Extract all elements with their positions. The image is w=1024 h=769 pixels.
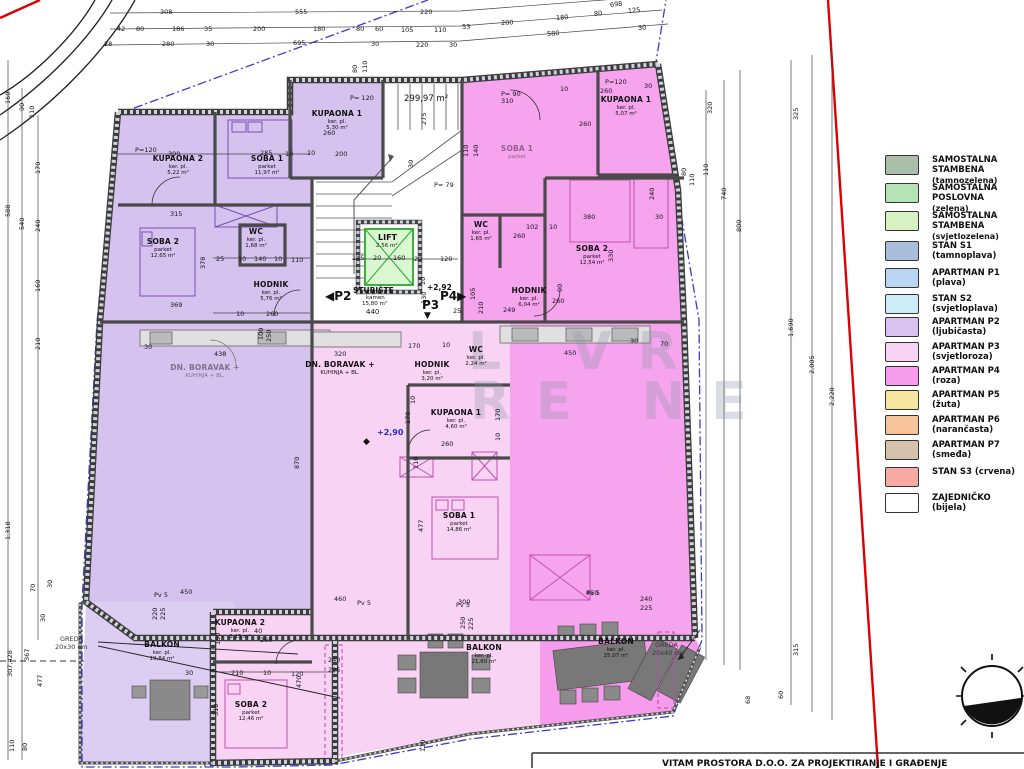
level-main: +2,90 (377, 428, 403, 437)
site-plan-drawing: L VR RE NE LIFT 2.56 m² STUBIŠTE kamen 1… (0, 0, 1024, 768)
dimension-label: 110 (702, 164, 710, 176)
dimension-label: 260 (260, 636, 272, 644)
dimension-label: 70 (29, 584, 37, 592)
room-label: KUPAONA 1ker. pl.4,60 m² (431, 409, 481, 430)
room-name: BALKON (466, 644, 502, 653)
dimension-label: 315 (170, 210, 182, 218)
dimension-label: 580 (547, 29, 560, 38)
dimension-label: 330 (607, 250, 615, 262)
dimension-label: 180 (313, 25, 325, 33)
legend-swatch (885, 294, 919, 314)
dimension-label: 10 (236, 310, 244, 318)
dimension-label: Pv 5 (456, 601, 470, 609)
legend-swatch (885, 366, 919, 386)
dimension-label: 240 (640, 595, 652, 603)
room-name: WC (245, 228, 267, 237)
dimension-label: 30 (46, 580, 54, 588)
dimension-label: 28 (104, 40, 112, 48)
dimension-label: 80 (136, 25, 144, 33)
dimension-label: 320 (334, 350, 346, 358)
room-label: SOBA 2parket12,54 m² (576, 245, 608, 266)
dimension-label: 110 (419, 740, 427, 752)
dimension-label: 240 (328, 656, 340, 664)
dimension-label: 110 (361, 61, 369, 73)
dimension-label: 2,220 (828, 387, 836, 406)
dimension-label: 110 (8, 740, 16, 752)
dimension-label: 1,690 (787, 318, 795, 337)
dimension-label: 477 (36, 675, 44, 687)
room-label: SOBA 1parket (501, 145, 533, 160)
north-symbol (956, 654, 1024, 738)
dimension-label: 145 (352, 254, 364, 262)
dimension-label: 369 (170, 301, 182, 309)
room-name: DN. BORAVAK + (305, 361, 375, 370)
dimension-label: 477 (417, 520, 425, 532)
room-floor-finish: ker. pl. (470, 230, 492, 236)
room-area: 5,22 m² (153, 170, 203, 176)
dimension-label: Pv 5 (586, 589, 600, 597)
dimension-label: P= 120 (350, 94, 374, 102)
legend-label: APARTMAN P4 (roza) (932, 367, 1024, 387)
stair-dim: 440 (366, 308, 379, 316)
dimension-label: 225 (467, 618, 475, 630)
dimension-label: 470 (295, 676, 303, 688)
dimension-label: 275 (420, 113, 428, 125)
dimension-label: 225 (328, 666, 340, 674)
dimension-label: 80 (351, 65, 359, 73)
legend-label: STAN S1 (tamnoplava) (932, 242, 1024, 262)
legend-swatch (885, 440, 919, 460)
room-floor-finish: ker. pl. (245, 237, 267, 243)
room-label: WCker. pl.1,68 m² (245, 228, 267, 249)
dimension-label: 285 (260, 149, 272, 157)
dimension-label: 25 (453, 307, 461, 315)
dimension-label: 100 (257, 328, 265, 340)
room-area: 1,65 m² (470, 236, 492, 242)
room-area: 5,07 m² (601, 111, 651, 117)
room-label: BALKONker. pl.21,60 m² (466, 644, 502, 665)
dimension-label: 250 (459, 617, 467, 629)
legend-label: APARTMAN P1 (plava) (932, 269, 1024, 289)
dimension-label: 30 (638, 23, 647, 32)
room-area: 3,20 m² (415, 376, 450, 382)
dimension-label: 110 (291, 256, 303, 264)
dimension-label: 42 (117, 25, 125, 33)
legend-swatch (885, 317, 919, 337)
room-name: SOBA 2 (147, 238, 179, 247)
dimension-label: 80 (21, 743, 29, 751)
dimension-label: 240 (34, 220, 42, 232)
room-area: 25,07 m² (598, 653, 634, 659)
legend-swatch (885, 268, 919, 288)
room-label: DN. BORAVAK +KUHINJA + BL. (170, 364, 240, 379)
dimension-label: 210 (231, 669, 243, 677)
legend-swatch (885, 211, 919, 231)
legend-swatch (885, 183, 919, 203)
dimension-label: Pv 5 (154, 591, 168, 599)
dimension-label: 25 (216, 255, 224, 263)
room-name: BALKON (144, 641, 180, 650)
dimension-label: 225 (159, 608, 167, 620)
dimension-label: 53 (462, 23, 471, 31)
legend-label: APARTMAN P7 (smeđa) (932, 441, 1024, 461)
dimension-label: 698 (610, 0, 623, 9)
room-label: HODNIKker. pl.5,76 m² (254, 281, 289, 302)
dimension-label: 170 (34, 162, 42, 174)
room-area: 6,04 m² (512, 302, 547, 308)
greda-left-size: 20x30 cm (55, 643, 87, 651)
dimension-label: 110 (28, 106, 36, 118)
dimension-label: 260 (579, 120, 591, 128)
room-name: BALKON (598, 638, 634, 647)
dimension-label: 310 (501, 97, 513, 105)
level-upper: +2,92 (427, 283, 452, 292)
dimension-label: 186 (172, 25, 184, 33)
dimension-label: 200 (501, 18, 514, 27)
dimension-label: 260 (600, 87, 612, 95)
dimension-label: 30 (655, 213, 663, 221)
dimension-label: 870 (293, 457, 301, 469)
dimension-label: 220 (416, 41, 428, 49)
dimension-label: 2,005 (808, 355, 816, 374)
room-area: 2,24 m² (465, 361, 487, 367)
dimension-label: 450 (180, 588, 192, 596)
dimension-label: 30 (644, 82, 652, 90)
dimension-label: 249 (503, 306, 515, 314)
dimension-label: 308 (160, 8, 172, 16)
apartment-p2-marker: ◀P2 (325, 289, 351, 303)
dimension-label: 30 (144, 343, 152, 351)
dimension-label: 60 (375, 25, 383, 33)
dimension-label: 10 (285, 150, 293, 158)
room-area: 12,54 m² (576, 260, 608, 266)
dimension-label: Pv 5 (357, 599, 371, 607)
room-label: KUPAONA 2ker. pl.5,22 m² (153, 155, 203, 176)
room-name: DN. BORAVAK + (170, 364, 240, 373)
dimension-label: 40 (254, 627, 262, 635)
dimension-label: 110 (462, 145, 470, 157)
room-area: 5,76 m² (254, 296, 289, 302)
dimension-label: 140 (472, 145, 480, 157)
room-label: SOBA 1parket11,97 m² (251, 155, 283, 176)
dimension-label: 220 (420, 8, 432, 16)
dimension-label: 68 (744, 696, 752, 704)
dimension-label: 460 (334, 595, 346, 603)
dimension-label: 10 (307, 149, 315, 157)
legend-swatch (885, 467, 919, 487)
dimension-label: 200 (253, 25, 265, 33)
room-area: 21,60 m² (466, 659, 502, 665)
dimension-label: 210 (34, 338, 42, 350)
room-label: WCker. pl.2,24 m² (465, 346, 487, 367)
dimension-label: 20 (414, 255, 422, 263)
room-label: SOBA 2parket12,46 m² (235, 701, 267, 722)
room-name: SOBA 1 (501, 145, 533, 154)
dimension-label: 160 (4, 92, 12, 104)
dimension-label: 110 (412, 457, 420, 469)
room-name: HODNIK (254, 281, 289, 290)
greda-right-label: GREDA (655, 641, 678, 649)
dimension-label: 20 (373, 254, 381, 262)
legend-label: STAN S2 (svjetloplava) (932, 295, 1024, 315)
legend-label: APARTMAN P6 (narančasta) (932, 416, 1024, 436)
dimension-label: 540 (18, 218, 26, 230)
dimension-label: 35 (204, 25, 212, 33)
dimension-label: 105 (469, 288, 477, 300)
greda-right-size: 20x40 cm (652, 649, 684, 657)
dimension-label: 120 (440, 255, 452, 263)
dimension-label: 10 (409, 396, 417, 404)
dimension-label: 588 (4, 205, 12, 217)
dimension-label: 170 (494, 409, 502, 421)
dimension-label: 10 (560, 85, 568, 93)
legend-label: SAMOSTALNA STAMBENA(tamnozelena) (932, 156, 1024, 185)
room-label: SOBA 2parket12,65 m² (147, 238, 179, 259)
legend-swatch (885, 390, 919, 410)
room-label: KUPAONA 1ker. pl.5,30 m² (312, 110, 362, 131)
dimension-label: 695 (293, 39, 305, 47)
stair-area: 15,80 m² (362, 301, 387, 307)
dimension-label: 740 (720, 188, 728, 200)
dimension-label: 390 (168, 150, 180, 158)
red-boundary-top-left (0, 0, 40, 18)
legend-sublabel: (svjetlozelena) (932, 232, 1024, 241)
dimension-label: 130 (420, 292, 428, 304)
dimension-label: 30 (185, 669, 193, 677)
room-name: KUPAONA 1 (312, 110, 362, 119)
legend-swatch (885, 241, 919, 261)
room-area: 12,46 m² (235, 716, 267, 722)
dimension-label: 240 (648, 188, 656, 200)
dimension-label: 70 (660, 340, 668, 348)
apartment-p3-arrow: ▼ (424, 311, 431, 321)
dimension-label: 80 (594, 9, 603, 18)
dimension-label: 110 (434, 26, 446, 34)
dimension-label: 307,428 (6, 650, 14, 677)
watermark-line2: RE NE (470, 372, 773, 432)
dimension-label: 800 (735, 220, 743, 232)
dimension-label: 110 (688, 174, 696, 186)
dimension-label: 30 (39, 614, 47, 622)
dimension-label: 90 (556, 284, 564, 292)
legend-label: ZAJEDNIČKO (bijela) (932, 494, 1024, 514)
dimension-label: 10 (263, 669, 271, 677)
legend-label: APARTMAN P3 (svjetloroza) (932, 343, 1024, 363)
dimension-label: 450 (564, 349, 576, 357)
dimension-label: 320 (706, 102, 714, 114)
dimension-label: 160 (393, 254, 405, 262)
room-name: HODNIK (512, 287, 547, 296)
dimension-label: 125 (628, 6, 641, 15)
dimension-label: P=120 (135, 146, 157, 154)
legend-label: APARTMAN P2 (ljubičasta) (932, 318, 1024, 338)
room-area: 11,97 m² (251, 170, 283, 176)
dimension-label: 30 (407, 160, 415, 168)
room-name: WC (465, 346, 487, 355)
dimension-label: 90 (18, 103, 26, 111)
room-name: KUPAONA 1 (431, 409, 481, 418)
dimension-label: 30 (206, 40, 214, 48)
dimension-label: 150 (214, 633, 222, 645)
dimension-label: 1,318 (4, 521, 12, 540)
dimension-label: 30 (371, 40, 379, 48)
dimension-label: 260 (441, 440, 453, 448)
room-label: BALKONker. pl.25,07 m² (598, 638, 634, 659)
room-area: 4,60 m² (431, 424, 481, 430)
dimension-label: 170 (408, 342, 420, 350)
dimension-label: 140 (254, 255, 266, 263)
legend-label: APARTMAN P5 (žuta) (932, 391, 1024, 411)
dimension-label: 200 (335, 150, 347, 158)
dimension-label: 10 (238, 255, 246, 263)
dimension-label: 10 (442, 341, 450, 349)
legend-label: SAMOSTALNA POSLOVNA(zelena) (932, 184, 1024, 213)
room-floor-finish: KUHINJA + BL. (305, 370, 375, 376)
dimension-label: 160 (34, 280, 42, 292)
room-label: HODNIKker. pl.3,20 m² (415, 361, 450, 382)
room-area: 1,68 m² (245, 243, 267, 249)
dimension-label: 438 (214, 350, 226, 358)
dimension-label: 210 (477, 302, 485, 314)
greda-left-label: GREDA (60, 635, 83, 643)
room-label: DN. BORAVAK +KUHINJA + BL. (305, 361, 375, 376)
dimension-label: 180 (556, 13, 569, 22)
dimension-label: 30 (449, 41, 457, 49)
total-area-label: 299,97 m² (404, 94, 448, 104)
room-area: 12,65 m² (147, 253, 179, 259)
legend-swatch (885, 415, 919, 435)
room-floor-finish: KUHINJA + BL. (170, 373, 240, 379)
room-area: 14,86 m² (443, 527, 475, 533)
room-floor-finish: parket (501, 154, 533, 160)
legend-label: SAMOSTALNA STAMBENA(svjetlozelena) (932, 212, 1024, 241)
room-name: SOBA 2 (235, 701, 267, 710)
room-floor-finish: ker. pl. (465, 355, 487, 361)
dimension-label: 170 (404, 412, 412, 424)
dimension-label: 105 (401, 26, 413, 34)
room-label: SOBA 1parket14,86 m² (443, 512, 475, 533)
dimension-label: 10 (549, 223, 557, 231)
room-name: SOBA 1 (443, 512, 475, 521)
dimension-label: 80 (356, 25, 364, 33)
room-label: WCker. pl.1,65 m² (470, 221, 492, 242)
dimension-label: 310 (212, 704, 220, 716)
red-boundary-line (828, 0, 878, 768)
dimension-label: 220 (151, 608, 159, 620)
dimension-label: 30 (630, 337, 638, 345)
dimension-label: 80 (680, 168, 688, 176)
room-area: 5,30 m² (312, 125, 362, 131)
dimension-label: 10 (494, 433, 502, 441)
dimension-label: 260 (266, 310, 278, 318)
dimension-label: 380 (583, 213, 595, 221)
dimension-label: 280 (162, 40, 174, 48)
dimension-label: 378 (199, 257, 207, 269)
level-symbol: ◆ (363, 437, 370, 447)
dimension-label: P=120 (605, 78, 627, 86)
lift-area: 2.56 m² (376, 243, 398, 249)
dimension-label: 367 (23, 649, 31, 661)
room-label: KUPAONA 1ker. pl.5,07 m² (601, 96, 651, 117)
dimension-label: 225 (640, 604, 652, 612)
legend-swatch (885, 493, 919, 513)
room-name: KUPAONA 1 (601, 96, 651, 105)
dimension-label: 20 (419, 277, 427, 285)
dimension-label: 60 (777, 691, 785, 699)
room-label: HODNIKker. pl.6,04 m² (512, 287, 547, 308)
lift-label: LIFT (378, 233, 397, 242)
dimension-label: 260 (513, 232, 525, 240)
dimension-label: P= 79 (434, 181, 454, 189)
dimension-label: 102 (526, 223, 538, 231)
dimension-label: 325 (792, 108, 800, 120)
dimension-label: 315 (792, 644, 800, 656)
room-name: WC (470, 221, 492, 230)
dimension-label: 260 (323, 129, 335, 137)
room-name: SOBA 2 (576, 245, 608, 254)
room-label: BALKONker. pl.19,84 m² (144, 641, 180, 662)
legend-label: STAN S3 (crvena) (932, 468, 1015, 478)
room-name: HODNIK (415, 361, 450, 370)
legend-swatch (885, 155, 919, 175)
dimension-label: 250 (265, 330, 273, 342)
stair-label: STUBIŠTE (353, 286, 394, 295)
dimension-label: 555 (295, 8, 307, 16)
room-area: 19,84 m² (144, 656, 180, 662)
dimension-label: 260 (552, 297, 564, 305)
dimension-label: 10 (274, 255, 282, 263)
legend-swatch (885, 342, 919, 362)
